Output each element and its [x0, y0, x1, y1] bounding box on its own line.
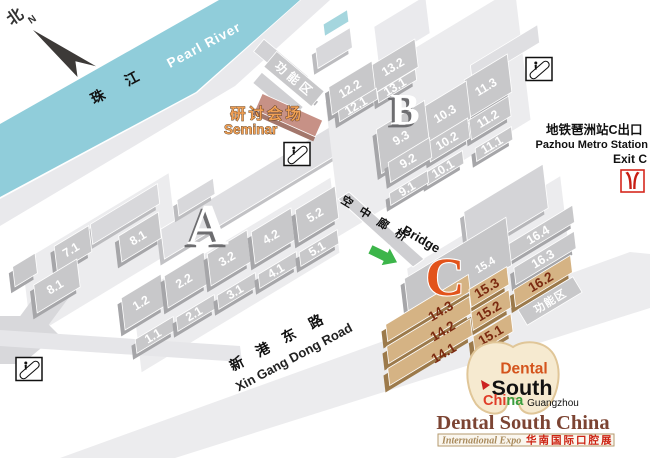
svg-text:China: China: [483, 393, 524, 409]
svg-text:Seminar: Seminar: [224, 122, 278, 137]
svg-text:Exit C: Exit C: [613, 152, 647, 166]
svg-text:地铁琶洲站C出口: 地铁琶洲站C出口: [546, 122, 643, 137]
svg-text:研讨会场: 研讨会场: [230, 104, 304, 123]
svg-text:Pazhou Metro Station: Pazhou Metro Station: [536, 139, 649, 151]
svg-text:C: C: [426, 247, 465, 307]
svg-text:Guangzhou: Guangzhou: [527, 398, 579, 409]
svg-text:Dental South China: Dental South China: [436, 412, 609, 434]
svg-text:B: B: [390, 85, 419, 134]
svg-text:Dental: Dental: [500, 361, 547, 378]
svg-text:International Expo: International Expo: [441, 436, 521, 447]
svg-text:A: A: [187, 192, 229, 257]
svg-text:华南国际口腔展: 华南国际口腔展: [526, 434, 614, 447]
